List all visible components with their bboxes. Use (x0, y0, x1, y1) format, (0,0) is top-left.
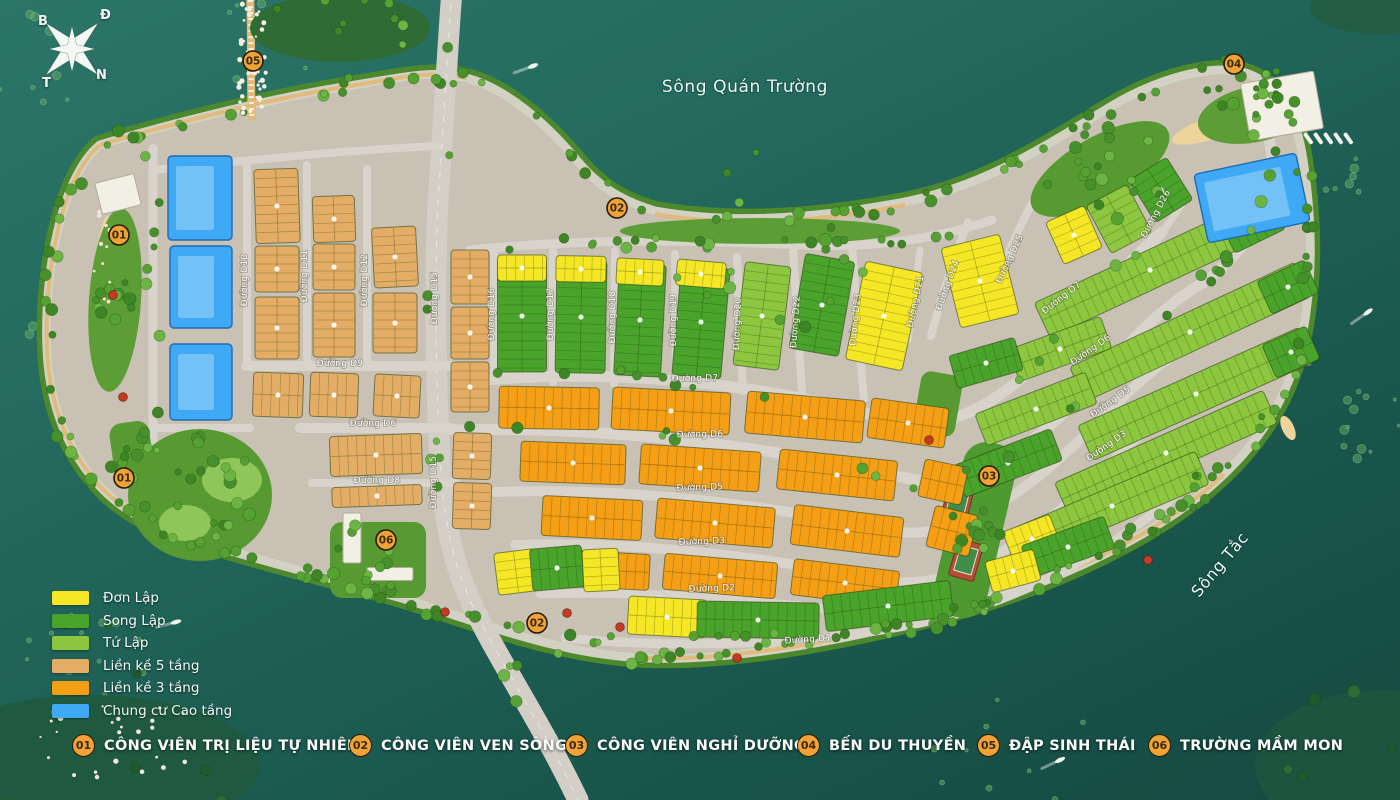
road-label: Đường D9 (317, 358, 364, 369)
legend-item: Chung cư Cao tầng (52, 704, 232, 718)
lot-block (371, 226, 418, 288)
road-label: Đường D2 (688, 582, 735, 595)
compass-east-label: Đ (100, 8, 111, 23)
legend-item: Tứ Lập (52, 636, 232, 650)
road-label: Đường D15 (429, 272, 440, 325)
map-marker-02[interactable]: 02 (607, 198, 627, 218)
svg-text:03: 03 (982, 471, 997, 483)
lot-block (373, 293, 417, 353)
compass-north-label: B (38, 14, 48, 29)
lot-block (611, 387, 731, 435)
map-marker-01[interactable]: 01 (114, 468, 134, 488)
lot-block (309, 372, 359, 418)
lot-block (254, 168, 301, 243)
footer-item-04: 04BẾN DU THUYỀN (797, 734, 966, 757)
lot-block (675, 259, 726, 289)
lot-block (373, 374, 421, 418)
legend-swatch (52, 704, 89, 718)
legend-item: Liền kề 5 tầng (52, 659, 232, 673)
svg-text:01: 01 (117, 473, 132, 485)
legend-swatch (52, 659, 89, 673)
lot-block (332, 484, 423, 507)
svg-text:01: 01 (112, 230, 127, 242)
road-label: Đường D12 (359, 254, 370, 307)
lot-block (529, 545, 584, 591)
apartment-building (170, 344, 232, 420)
lot-block (255, 246, 299, 292)
road-label: Đường D18 (607, 291, 618, 344)
svg-text:05: 05 (246, 56, 261, 68)
footer-item-number: 03 (565, 734, 588, 757)
footer-item-label: CÔNG VIÊN VEN SÔNG (381, 738, 567, 754)
legend-label: Đơn Lập (103, 590, 159, 606)
footer-item-number: 02 (349, 734, 372, 757)
footer-item-number: 04 (797, 734, 820, 757)
footer-item-03: 03CÔNG VIÊN NGHỈ DƯỠNG (565, 734, 806, 757)
footer-item-05: 05ĐẬP SINH THÁI (977, 734, 1136, 757)
map-marker-04[interactable]: 04 (1224, 54, 1244, 74)
road-label: Đường D15 (428, 456, 439, 509)
compass-west-label: T (42, 76, 51, 91)
road-label: Đường D10 (239, 254, 250, 307)
footer-item-number: 06 (1148, 734, 1171, 757)
lot-block (541, 495, 643, 540)
lot-block (452, 482, 492, 529)
legend-swatch (52, 591, 89, 605)
map-marker-02[interactable]: 02 (527, 613, 547, 633)
masterplan-map: Đường D10Đường D11Đường D12Đường D15Đườn… (0, 0, 1400, 800)
svg-text:02: 02 (530, 618, 545, 630)
legend-swatch (52, 636, 89, 650)
compass-south-label: N (96, 68, 107, 83)
lot-block (451, 307, 489, 359)
footer-item-label: ĐẬP SINH THÁI (1009, 738, 1136, 754)
lot-block (616, 258, 664, 286)
road-label: Đường D7 (672, 373, 719, 385)
map-marker-06[interactable]: 06 (376, 530, 396, 550)
footer-item-02: 02CÔNG VIÊN VEN SÔNG (349, 734, 567, 757)
legend-label: Song Lập (103, 613, 166, 629)
road-label: Đường D19 (668, 294, 679, 347)
road-label: Đường D16 (486, 288, 497, 341)
road-label: Đường D17 (545, 288, 556, 341)
legend-label: Liền kề 3 tầng (103, 680, 199, 696)
footer-item-label: BẾN DU THUYỀN (829, 738, 966, 754)
lot-block (255, 297, 299, 359)
legend-item: Song Lập (52, 614, 232, 628)
legend-item: Đơn Lập (52, 591, 232, 605)
map-marker-03[interactable]: 03 (979, 466, 999, 486)
lot-block (312, 195, 356, 242)
apartment-building (168, 156, 232, 240)
svg-text:04: 04 (1227, 59, 1242, 71)
compass-rose: B Đ T N (24, 6, 120, 98)
footer-item-label: TRƯỜNG MẦM MON (1180, 738, 1343, 754)
lot-block (252, 372, 304, 418)
lot-block (451, 250, 489, 304)
svg-text:02: 02 (610, 203, 625, 215)
road-label: Đường D20 (731, 297, 744, 350)
footer-item-label: CÔNG VIÊN NGHỈ DƯỠNG (597, 738, 806, 754)
svg-text:06: 06 (379, 535, 394, 547)
apartment-building (170, 246, 232, 328)
lot-block (313, 293, 355, 357)
footer-item-number: 05 (977, 734, 1000, 757)
legend: Đơn LậpSong LậpTứ LậpLiền kề 5 tầngLiền … (52, 591, 232, 727)
lot-block (498, 255, 547, 281)
lot-block (697, 601, 820, 639)
footer-item-06: 06TRƯỜNG MẦM MON (1148, 734, 1343, 757)
road-label: Đường D6 (677, 429, 724, 441)
map-marker-05[interactable]: 05 (243, 51, 263, 71)
legend-label: Tứ Lập (103, 635, 148, 651)
lot-block (556, 256, 606, 283)
footer-item-01: 01CÔNG VIÊN TRỊ LIỆU TỰ NHIÊN (72, 734, 359, 757)
lot-block (582, 548, 620, 592)
legend-label: Liền kề 5 tầng (103, 658, 199, 674)
lot-block (452, 432, 492, 479)
footer-item-number: 01 (72, 734, 95, 757)
facility-building (367, 568, 413, 581)
footer-item-label: CÔNG VIÊN TRỊ LIỆU TỰ NHIÊN (104, 738, 359, 754)
legend-item: Liền kề 3 tầng (52, 681, 232, 695)
lot-block (329, 433, 422, 476)
road-label: Đường D3 (678, 535, 725, 548)
road-label: Đường D6 (350, 418, 397, 429)
legend-swatch (52, 681, 89, 695)
road-label: Đường D5 (676, 481, 723, 494)
river-label-song-tac: Sông Tắc (1187, 528, 1252, 600)
legend-swatch (52, 614, 89, 628)
legend-label: Chung cư Cao tầng (103, 703, 232, 719)
lot-block (520, 441, 626, 485)
road-label: Đường D8 (354, 475, 401, 486)
lot-block (451, 362, 489, 412)
lot-block (313, 244, 355, 290)
road-label: Đường D11 (299, 250, 310, 303)
map-marker-01[interactable]: 01 (109, 225, 129, 245)
river-label-song-quan-truong: Sông Quán Trường (662, 77, 828, 97)
